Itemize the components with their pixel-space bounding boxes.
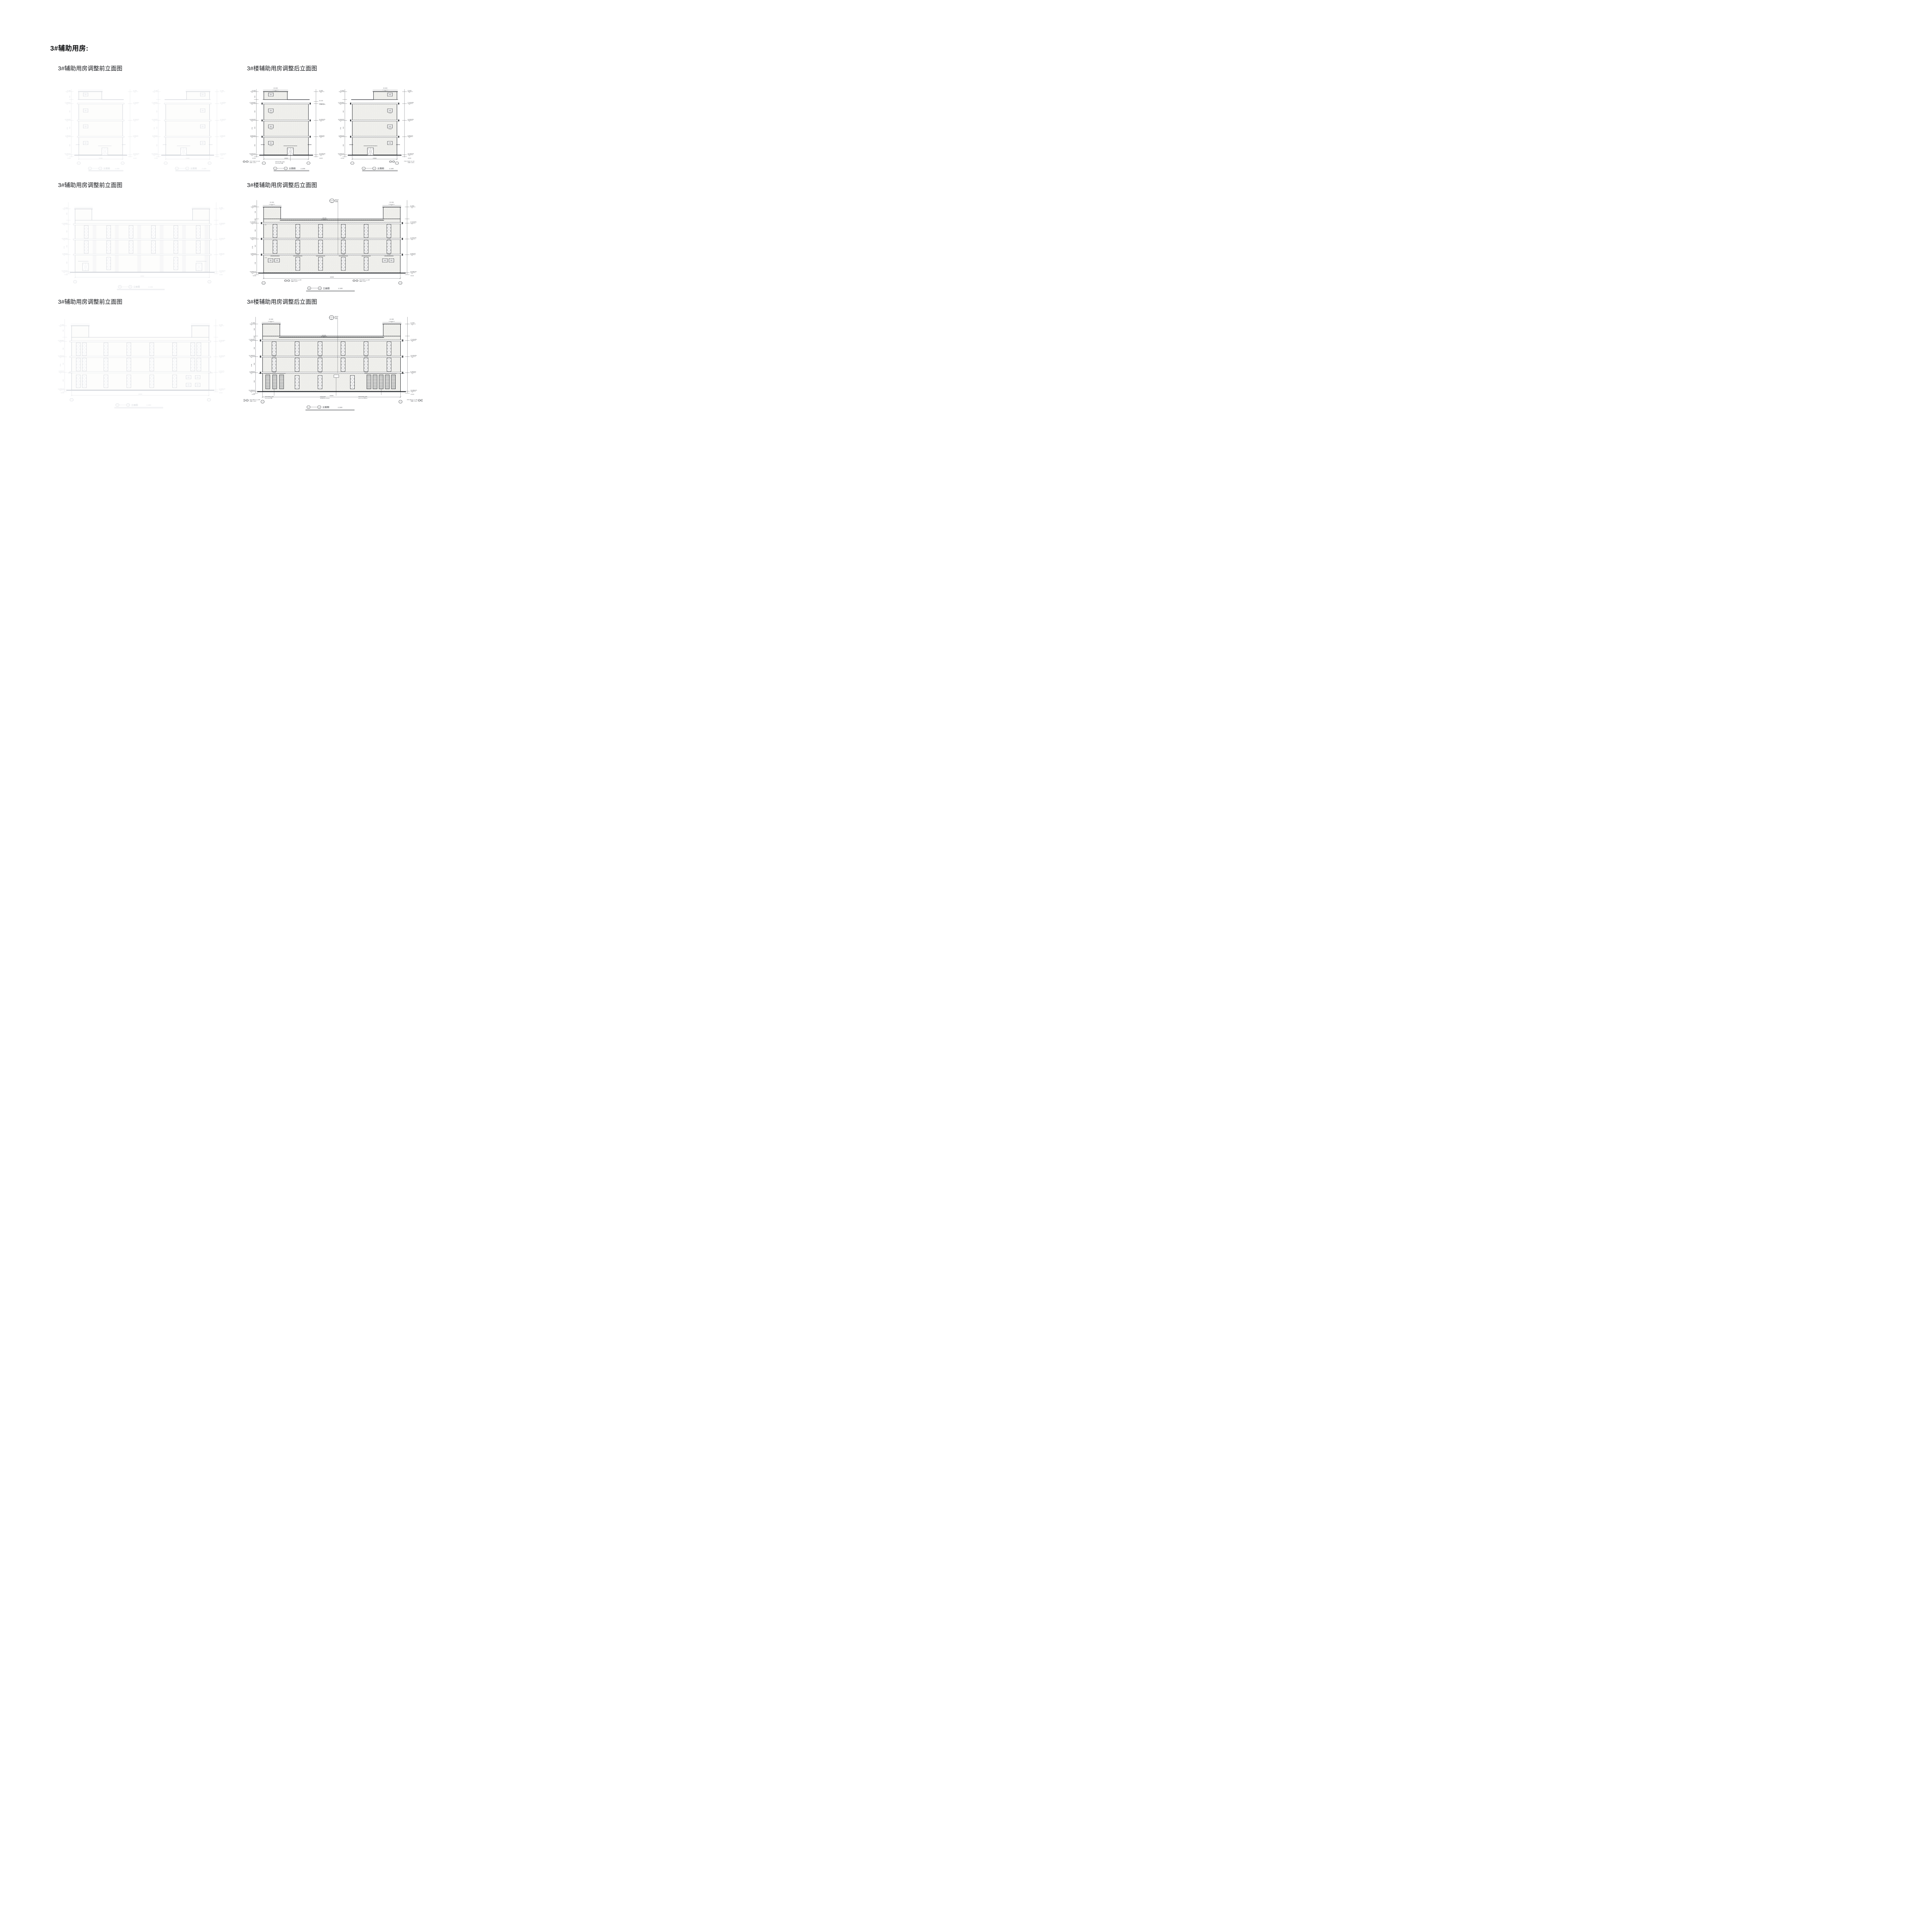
svg-text:墙身大样: 墙身大样 — [335, 199, 339, 201]
svg-text:3-4: 3-4 — [308, 407, 310, 408]
caption: 3-1 3-3 立面图 1:100 — [274, 167, 309, 171]
svg-text:C1504: C1504 — [269, 113, 273, 114]
svg-text:6400: 6400 — [63, 379, 64, 382]
svg-text:6.400(2F): 6.400(2F) — [319, 135, 325, 137]
svg-text:17.600(RF): 17.600(RF) — [250, 221, 256, 223]
svg-text:立面图: 立面图 — [190, 167, 197, 170]
svg-text:17.600(RF): 17.600(RF) — [219, 340, 225, 341]
svg-text:14000: 14000 — [284, 158, 288, 159]
svg-text:C1540: C1540 — [272, 372, 276, 373]
svg-text:12.000(3F): 12.000(3F) — [58, 355, 64, 357]
svg-text:5650: 5650 — [343, 127, 344, 129]
wide-elevation: C1540 C1540 C1540 C1540 C1540 C1540 1 11… — [243, 316, 423, 410]
svg-text:4200: 4200 — [70, 95, 71, 98]
svg-text:C1540: C1540 — [387, 238, 391, 240]
svg-text:详图集 11ZJ901: 详图集 11ZJ901 — [291, 281, 298, 282]
svg-text:立面图: 立面图 — [377, 167, 384, 170]
svg-text:±0.000(1F): ±0.000(1F) — [408, 153, 414, 155]
svg-text:3-6: 3-6 — [119, 286, 121, 287]
rail-note: 3/22 1/21 栏杆柱 顶标高2.500 含网 详图集 11ZJ901 栏杆… — [243, 399, 423, 402]
rail-note: 3/22 1/21 栏杆柱 顶标高2.500 含网 详图集 11ZJ901 — [243, 160, 260, 163]
canopy-note: 铝合金百叶窗口(含网) 5500x1800 雨篷 — [275, 155, 290, 164]
svg-text:1:100: 1:100 — [202, 168, 206, 170]
svg-text:1:100: 1:100 — [301, 168, 306, 170]
svg-text:-0.015: -0.015 — [252, 158, 256, 159]
svg-text:12.000(3F): 12.000(3F) — [62, 238, 68, 239]
svg-text:21.800: 21.800 — [60, 324, 65, 326]
svg-text:C1540: C1540 — [364, 356, 368, 357]
svg-text:6.400(2F): 6.400(2F) — [62, 253, 68, 255]
svg-text:3/22: 3/22 — [243, 400, 245, 401]
svg-text:17750: 17750 — [340, 127, 341, 130]
svg-text:22.400: 22.400 — [270, 202, 274, 203]
svg-text:3-6: 3-6 — [127, 405, 129, 406]
svg-text:±0.000(1F): ±0.000(1F) — [338, 153, 344, 155]
svg-text:5600: 5600 — [156, 110, 158, 112]
svg-text:详建施: 详建施 — [335, 201, 338, 202]
drawing-before-towers: 21.800 17.600(RF) 12.000(3F) 6.400(2F) ±… — [58, 84, 233, 174]
svg-text:C1540: C1540 — [318, 356, 322, 357]
svg-text:1/21: 1/21 — [288, 281, 289, 281]
svg-text:5650: 5650 — [156, 126, 158, 129]
rail-note: 3/22 1/21 栏杆柱 顶标高2.500 含网 详图集 11ZJ901 3/… — [284, 279, 370, 282]
svg-text:21.800: 21.800 — [220, 90, 224, 92]
svg-text:12.000(3F): 12.000(3F) — [151, 119, 158, 120]
tower-elevation-b: 21.800 17.600(RF) 12.000(3F) 6.400(2F) ±… — [151, 89, 226, 171]
svg-text:详图集 11ZJ901: 详图集 11ZJ901 — [250, 400, 257, 402]
svg-text:-0.015: -0.015 — [219, 274, 223, 276]
svg-text:±0.000(1F): ±0.000(1F) — [133, 153, 139, 155]
svg-text:±0.000(1F): ±0.000(1F) — [220, 153, 226, 155]
svg-text:1:100: 1:100 — [389, 168, 394, 170]
svg-text:5600: 5600 — [343, 110, 344, 112]
section-label-after-3: 3#楼辅助用房调整后立面图 — [247, 298, 317, 306]
svg-text:5500x1800 雨篷: 5500x1800 雨篷 — [275, 163, 283, 164]
svg-text:21.800: 21.800 — [408, 90, 412, 92]
svg-text:-0.015: -0.015 — [408, 158, 412, 159]
svg-text:立面图: 立面图 — [133, 286, 140, 288]
caption: 3-6 3-4 立面图 1:100 — [117, 286, 165, 290]
svg-text:18.100: 18.100 — [319, 100, 323, 102]
svg-text:1:100: 1:100 — [148, 286, 153, 288]
svg-text:4200: 4200 — [63, 330, 64, 332]
svg-text:12.000(3F): 12.000(3F) — [220, 119, 226, 120]
svg-text:3-4: 3-4 — [129, 286, 131, 287]
svg-text:12.000(3F): 12.000(3F) — [410, 355, 417, 356]
caption: 3-3 3-1 立面图 1:100 — [175, 167, 210, 171]
drawing-before-wide-2: 21.800 17.600(RF) 12.000(3F) 6.400(2F) ±… — [53, 315, 231, 409]
svg-text:详建施: 详建施 — [335, 318, 338, 320]
svg-text:22.400: 22.400 — [389, 202, 394, 203]
svg-text:C1504: C1504 — [269, 145, 273, 146]
svg-text:21.800: 21.800 — [219, 324, 223, 326]
svg-text:6.400(2F): 6.400(2F) — [59, 371, 64, 372]
svg-text:4200: 4200 — [254, 95, 255, 98]
svg-text:-0.015: -0.015 — [410, 394, 414, 395]
svg-text:6400: 6400 — [255, 262, 256, 264]
svg-text:14000: 14000 — [373, 158, 377, 159]
svg-text:3-1: 3-1 — [187, 168, 189, 169]
svg-text:-0.015: -0.015 — [252, 394, 255, 395]
svg-text:4200: 4200 — [255, 211, 256, 213]
svg-text:立面图: 立面图 — [289, 167, 296, 170]
svg-text:3-6: 3-6 — [263, 282, 264, 284]
svg-text:±0.000(1F): ±0.000(1F) — [249, 153, 256, 155]
svg-text:3/22: 3/22 — [421, 400, 423, 401]
svg-text:17.600(RF): 17.600(RF) — [65, 102, 71, 104]
svg-text:-0.015: -0.015 — [133, 158, 137, 159]
svg-text:1:100: 1:100 — [338, 287, 343, 289]
svg-text:6.400(2F): 6.400(2F) — [220, 135, 225, 137]
svg-text:1500: 1500 — [255, 219, 256, 221]
svg-text:5650: 5650 — [254, 127, 255, 129]
svg-text:立面图: 立面图 — [103, 167, 110, 170]
svg-text:42000: 42000 — [138, 393, 142, 395]
svg-text:5600: 5600 — [70, 110, 71, 112]
svg-text:5650: 5650 — [255, 245, 256, 247]
svg-text:1/21: 1/21 — [356, 281, 358, 281]
svg-text:4200: 4200 — [66, 213, 68, 215]
svg-text:5650: 5650 — [70, 126, 71, 129]
svg-text:±0.000(1F): ±0.000(1F) — [250, 271, 256, 272]
svg-text:21.800: 21.800 — [154, 90, 158, 92]
svg-text:±0.000(1F): ±0.000(1F) — [58, 388, 64, 390]
svg-text:12.000(3F): 12.000(3F) — [408, 119, 414, 120]
svg-text:3-6: 3-6 — [318, 407, 320, 408]
svg-text:42000: 42000 — [330, 276, 334, 278]
svg-text:1500: 1500 — [254, 336, 255, 338]
svg-text:17750: 17750 — [252, 246, 253, 248]
svg-text:21.800: 21.800 — [64, 207, 68, 209]
svg-text:6.400(2F): 6.400(2F) — [219, 253, 224, 255]
svg-text:6.400(2F): 6.400(2F) — [133, 135, 138, 137]
svg-text:5600: 5600 — [63, 347, 64, 350]
svg-text:12.000(3F): 12.000(3F) — [249, 355, 255, 356]
caption: 3-4 3-6 立面图 1:100 — [306, 406, 355, 410]
svg-text:17.600(RF): 17.600(RF) — [410, 339, 417, 340]
svg-text:14000: 14000 — [186, 158, 190, 159]
svg-text:17.600(RF): 17.600(RF) — [319, 104, 325, 105]
section-label-after-1: 3#楼辅助用房调整后立面图 — [247, 64, 317, 72]
svg-text:-0.015: -0.015 — [319, 158, 323, 159]
svg-text:12.000(3F): 12.000(3F) — [219, 355, 225, 357]
svg-text:详图集 11ZJ901: 详图集 11ZJ901 — [359, 281, 366, 282]
svg-text:±0.000(1F): ±0.000(1F) — [219, 388, 225, 390]
svg-text:4200: 4200 — [254, 328, 255, 330]
svg-text:±0.000(1F): ±0.000(1F) — [410, 271, 417, 272]
svg-text:±0.000(1F): ±0.000(1F) — [410, 389, 417, 391]
svg-text:3-3: 3-3 — [176, 168, 178, 169]
tower-elevation-a: C1504 C1504 C1504 21.800 17.600(RF) 12.0… — [243, 87, 325, 171]
svg-text:22.400: 22.400 — [269, 318, 273, 320]
svg-text:1:100: 1:100 — [338, 406, 343, 408]
svg-text:6400: 6400 — [66, 262, 68, 264]
svg-text:12.000(3F): 12.000(3F) — [319, 119, 325, 120]
svg-text:400: 400 — [265, 224, 267, 226]
svg-text:17750: 17750 — [67, 127, 68, 130]
tower-elevation-a: 21.800 17.600(RF) 12.000(3F) 6.400(2F) ±… — [65, 89, 139, 171]
svg-text:3-4: 3-4 — [117, 405, 119, 406]
svg-text:14000: 14000 — [99, 158, 103, 159]
svg-text:1/21: 1/21 — [390, 162, 391, 162]
svg-text:21.800: 21.800 — [252, 205, 257, 207]
svg-text:21.800: 21.800 — [319, 90, 323, 92]
svg-text:6400: 6400 — [70, 144, 71, 146]
svg-text:-0.015: -0.015 — [64, 274, 68, 276]
svg-text:立面图: 立面图 — [323, 287, 330, 289]
drawing-after-towers: C1504 C1504 C1504 21.800 17.600(RF) 12.0… — [243, 84, 420, 174]
svg-text:3-1: 3-1 — [374, 168, 376, 169]
svg-text:C1540: C1540 — [272, 356, 276, 357]
svg-text:±0.000(1F): ±0.000(1F) — [248, 389, 255, 391]
svg-text:3-4: 3-4 — [319, 288, 321, 289]
svg-text:17.600(RF): 17.600(RF) — [220, 102, 226, 104]
svg-text:18.100: 18.100 — [322, 217, 327, 219]
svg-text:铝合金百叶窗口(含网): 铝合金百叶窗口(含网) — [358, 396, 367, 398]
svg-text:21.800: 21.800 — [410, 322, 415, 324]
caption: 3-3 3-1 立面图 1:100 — [362, 167, 398, 171]
svg-text:C1540: C1540 — [318, 372, 322, 373]
svg-text:17.600(RF): 17.600(RF) — [61, 223, 68, 224]
svg-text:C1540: C1540 — [387, 254, 391, 255]
svg-text:21.800: 21.800 — [410, 205, 415, 207]
svg-text:3-3: 3-3 — [285, 168, 287, 169]
svg-text:C1540: C1540 — [364, 372, 368, 373]
svg-text:5650: 5650 — [66, 245, 68, 247]
svg-text:3-4: 3-4 — [71, 400, 73, 401]
svg-text:3/22: 3/22 — [353, 281, 355, 281]
section-label-before-2: 3#辅助用房调整前立面图 — [58, 181, 122, 189]
drawing-before-wide-1: 21.800 17.600(RF) 12.000(3F) 6.400(2F) ±… — [56, 198, 231, 291]
svg-text:6.400(2F): 6.400(2F) — [410, 371, 416, 372]
svg-text:21.800: 21.800 — [251, 322, 255, 324]
svg-text:3-6: 3-6 — [308, 288, 310, 289]
svg-text:18.100: 18.100 — [322, 335, 326, 336]
svg-text:立面图: 立面图 — [131, 404, 138, 406]
svg-text:12.000(3F): 12.000(3F) — [338, 119, 344, 120]
section-label-before-1: 3#辅助用房调整前立面图 — [58, 64, 122, 72]
svg-text:6400: 6400 — [343, 144, 344, 146]
svg-text:铝合金百叶窗: 铝合金百叶窗 — [320, 396, 326, 398]
svg-text:17750: 17750 — [60, 364, 61, 366]
svg-text:21.800: 21.800 — [133, 90, 137, 92]
svg-text:±0.000(1F): ±0.000(1F) — [219, 270, 225, 272]
svg-text:±0.000(1F): ±0.000(1F) — [61, 270, 68, 272]
svg-text:3-6: 3-6 — [208, 400, 210, 401]
svg-text:铝合金百叶窗口(含网): 铝合金百叶窗口(含网) — [265, 396, 274, 398]
svg-text:±0.000(1F): ±0.000(1F) — [319, 153, 326, 155]
svg-text:C1540: C1540 — [296, 254, 299, 255]
svg-text:12.000(3F): 12.000(3F) — [410, 237, 417, 239]
svg-text:立面图: 立面图 — [322, 406, 329, 408]
page-title: 3#辅助用房: — [50, 43, 88, 53]
svg-text:21.800: 21.800 — [252, 90, 256, 92]
svg-text:-0.015: -0.015 — [340, 158, 344, 159]
svg-text:17.600(RF): 17.600(RF) — [250, 102, 256, 104]
svg-text:17750: 17750 — [64, 246, 65, 249]
svg-text:12.000(3F): 12.000(3F) — [219, 238, 225, 239]
svg-text:3-6: 3-6 — [400, 401, 401, 403]
svg-text:±0.000(1F): ±0.000(1F) — [151, 153, 158, 155]
svg-text:-0.015: -0.015 — [154, 158, 158, 159]
svg-text:42000: 42000 — [140, 276, 144, 277]
svg-text:消防联控箱 1650X800: 消防联控箱 1650X800 — [320, 398, 330, 399]
svg-text:详图集 11ZJ901: 详图集 11ZJ901 — [250, 162, 257, 163]
svg-text:-0.015: -0.015 — [219, 392, 223, 394]
svg-text:1:100: 1:100 — [146, 404, 151, 406]
svg-text:17.600(RF): 17.600(RF) — [219, 223, 225, 224]
svg-text:22.400: 22.400 — [274, 87, 278, 89]
svg-text:详图集 11ZJ901: 详图集 11ZJ901 — [408, 162, 415, 163]
svg-text:21.800: 21.800 — [340, 90, 345, 92]
svg-text:12.000(3F): 12.000(3F) — [65, 119, 71, 120]
svg-text:3-3: 3-3 — [100, 168, 102, 169]
svg-text:1000: 1000 — [265, 257, 267, 259]
svg-text:17.600(RF): 17.600(RF) — [133, 102, 139, 104]
svg-text:5650: 5650 — [63, 362, 64, 365]
drawing-after-wide-2: C1540 C1540 C1540 C1540 C1540 C1540 1 11… — [243, 312, 423, 411]
svg-text:-0.015: -0.015 — [67, 158, 71, 159]
caption: 3-4 3-6 立面图 1:100 — [114, 403, 163, 408]
svg-text:C1540: C1540 — [342, 254, 345, 255]
svg-text:-0.015: -0.015 — [61, 392, 65, 394]
svg-text:5600: 5600 — [254, 110, 255, 112]
svg-text:17750: 17750 — [154, 127, 155, 130]
svg-text:5600: 5600 — [255, 229, 256, 231]
svg-text:5600: 5600 — [254, 347, 255, 349]
svg-text:4600x1500 距地300: 4600x1500 距地300 — [358, 398, 367, 399]
svg-text:6.400(2F): 6.400(2F) — [219, 371, 224, 372]
svg-text:22.400: 22.400 — [383, 87, 388, 89]
svg-text:12.000(3F): 12.000(3F) — [133, 119, 139, 120]
svg-text:6400: 6400 — [156, 144, 158, 146]
svg-text:5500x1800 雨篷: 5500x1800 雨篷 — [265, 398, 273, 399]
svg-text:11: 11 — [331, 318, 332, 320]
svg-text:±0.000(1F): ±0.000(1F) — [65, 153, 71, 155]
svg-text:6.400(2F): 6.400(2F) — [339, 135, 344, 137]
svg-text:-0.015: -0.015 — [410, 275, 414, 277]
section-label-after-2: 3#楼辅助用房调整后立面图 — [247, 181, 317, 189]
svg-text:6.400(2F): 6.400(2F) — [250, 135, 256, 137]
svg-text:栏杆柱 顶标高2.500 含网: 栏杆柱 顶标高2.500 含网 — [291, 279, 301, 281]
svg-text:铝合金百叶窗口(含网): 铝合金百叶窗口(含网) — [275, 161, 285, 163]
svg-text:3/22: 3/22 — [393, 162, 394, 162]
svg-text:3-1: 3-1 — [274, 168, 276, 169]
wide-elevation: 21.800 17.600(RF) 12.000(3F) 6.400(2F) ±… — [58, 319, 225, 408]
svg-text:22.400: 22.400 — [389, 318, 394, 320]
svg-text:5650: 5650 — [254, 363, 255, 365]
svg-text:17.600(RF): 17.600(RF) — [338, 102, 344, 104]
svg-text:6.400(2F): 6.400(2F) — [152, 135, 158, 137]
wide-elevation: C1540 C1540 C1540 C1540 C1540 C1540 400 … — [250, 199, 417, 291]
svg-text:6.400(2F): 6.400(2F) — [251, 253, 256, 255]
rail-note: 1/21 3/22 栏杆柱 顶标高2.500 含网 详图集 11ZJ901 — [389, 160, 415, 163]
svg-text:墙身大样: 墙身大样 — [335, 316, 338, 317]
svg-text:C1540: C1540 — [342, 238, 345, 240]
svg-text:17.600(RF): 17.600(RF) — [151, 102, 158, 104]
svg-text:11: 11 — [331, 202, 333, 203]
svg-text:详图集 11ZJ901: 详图集 11ZJ901 — [410, 400, 417, 402]
svg-text:17750: 17750 — [252, 127, 253, 130]
svg-text:5600: 5600 — [66, 230, 68, 233]
svg-text:21.800: 21.800 — [67, 90, 71, 92]
svg-text:6400: 6400 — [254, 144, 255, 146]
svg-text:42000: 42000 — [330, 395, 333, 396]
svg-text:栏杆柱 顶标高2.500 含网: 栏杆柱 顶标高2.500 含网 — [250, 399, 260, 400]
svg-text:12.000(3F): 12.000(3F) — [250, 237, 256, 239]
svg-text:栏杆柱 顶标高2.500 含网: 栏杆柱 顶标高2.500 含网 — [359, 279, 370, 281]
svg-text:1:100: 1:100 — [115, 168, 119, 170]
svg-text:6.400(2F): 6.400(2F) — [408, 135, 413, 137]
svg-text:3-4: 3-4 — [400, 282, 401, 284]
svg-text:栏杆柱 顶标高2.500 含网: 栏杆柱 顶标高2.500 含网 — [407, 399, 418, 400]
svg-text:3-3: 3-3 — [363, 168, 365, 169]
caption: 3-1 3-3 立面图 1:100 — [88, 167, 123, 171]
svg-text:17.600(RF): 17.600(RF) — [410, 221, 417, 223]
caption: 3-6 3-4 立面图 1:100 — [306, 287, 355, 291]
svg-text:6.400(2F): 6.400(2F) — [250, 371, 255, 372]
svg-text:17.600(RF): 17.600(RF) — [408, 102, 414, 104]
svg-text:6.400(2F): 6.400(2F) — [65, 135, 71, 137]
svg-text:12.000(3F): 12.000(3F) — [250, 119, 256, 120]
wide-elevation: 21.800 17.600(RF) 12.000(3F) 6.400(2F) ±… — [61, 202, 226, 289]
svg-text:3-4: 3-4 — [262, 401, 264, 403]
svg-text:3/22: 3/22 — [243, 162, 245, 162]
svg-text:6400: 6400 — [254, 380, 255, 383]
tower-elevation-b: C1504 C1504 21.800 17.600(RF) 12.000(3F)… — [338, 87, 415, 171]
svg-text:17.600(RF): 17.600(RF) — [58, 340, 64, 341]
svg-text:17750: 17750 — [251, 364, 252, 367]
svg-text:21.800: 21.800 — [219, 207, 223, 209]
svg-text:C1504: C1504 — [388, 129, 392, 130]
svg-text:-0.015: -0.015 — [252, 275, 256, 277]
svg-text:3/22: 3/22 — [285, 281, 286, 281]
svg-text:6.400(2F): 6.400(2F) — [410, 253, 416, 255]
section-label-before-3: 3#辅助用房调整前立面图 — [58, 298, 122, 306]
svg-text:C1504: C1504 — [388, 113, 392, 114]
svg-text:栏杆柱 顶标高2.500 含网: 栏杆柱 顶标高2.500 含网 — [250, 160, 260, 162]
svg-text:17.600(RF): 17.600(RF) — [249, 339, 255, 340]
svg-text:C1540: C1540 — [296, 238, 299, 240]
svg-text:1/21: 1/21 — [247, 162, 248, 162]
svg-text:-0.015: -0.015 — [220, 158, 224, 159]
svg-text:栏杆柱 顶标高2.500 含网: 栏杆柱 顶标高2.500 含网 — [404, 160, 415, 162]
svg-text:C1504: C1504 — [269, 129, 273, 130]
svg-text:3-1: 3-1 — [89, 168, 91, 169]
drawing-after-wide-1: C1540 C1540 C1540 C1540 C1540 C1540 400 … — [245, 196, 422, 292]
